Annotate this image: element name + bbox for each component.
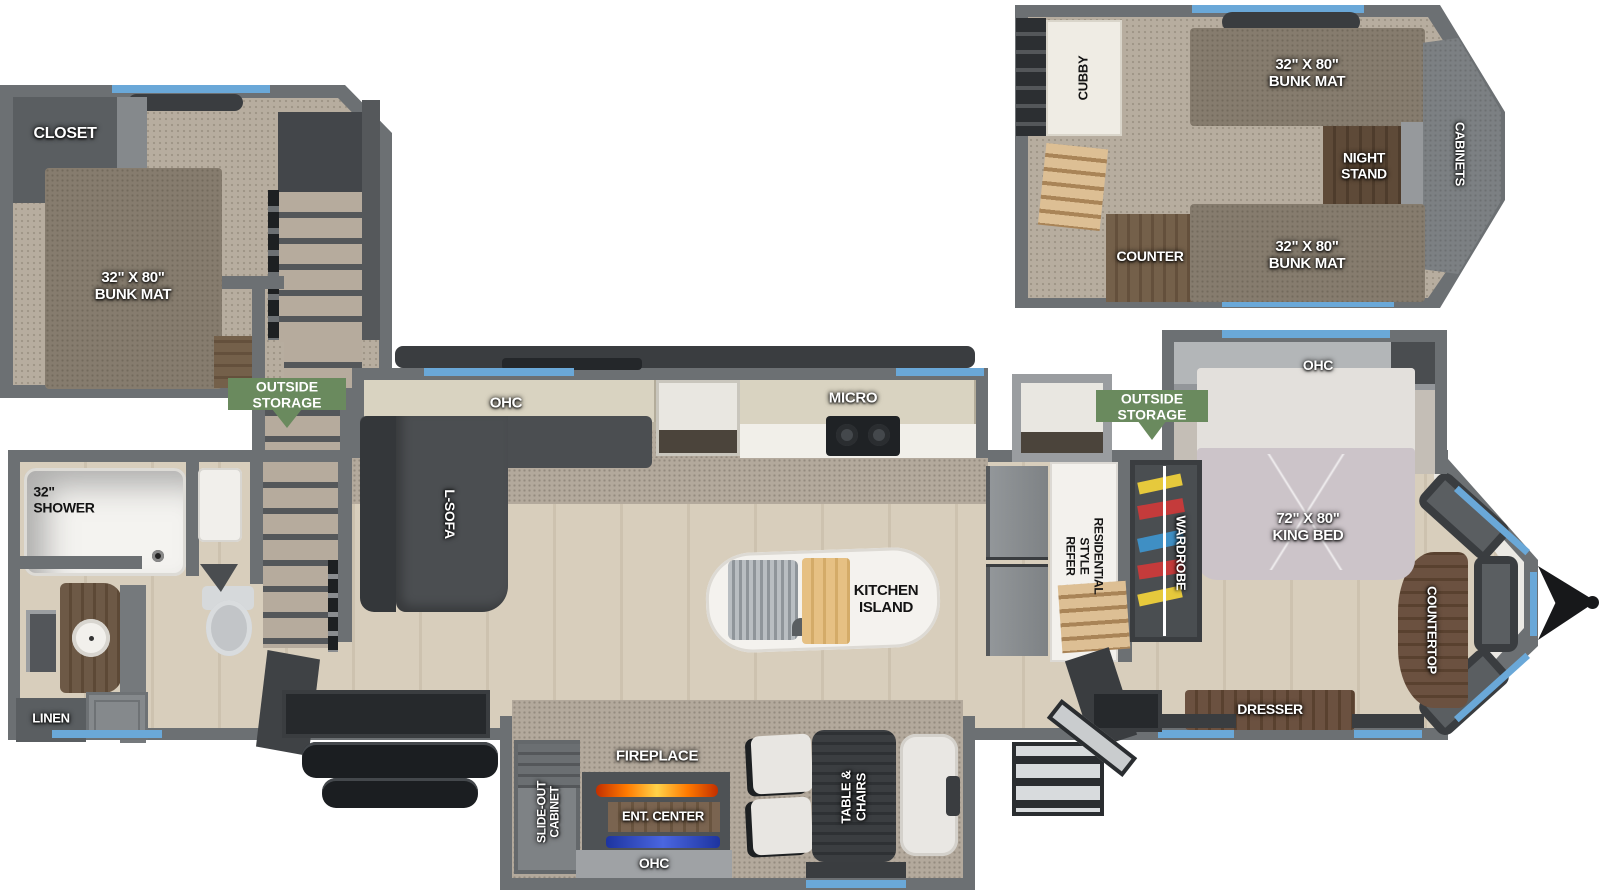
- stove-burner-right: [868, 424, 890, 446]
- bath-bottom-window: [52, 730, 162, 738]
- nose-window-front-pane: [1482, 564, 1510, 644]
- counter-label: COUNTER: [1116, 249, 1183, 265]
- nose-window-strip-front: [1530, 572, 1537, 636]
- right-loft-ladder-black: [1016, 18, 1046, 136]
- hitch-coupler: [1586, 596, 1599, 609]
- king-bed-mattress: [1197, 368, 1415, 580]
- shower-drain: [152, 550, 164, 562]
- left-loft-stair-landing: [278, 112, 362, 192]
- left-loft-wall-stub-v: [252, 276, 265, 388]
- cubby-label: CUBBY: [1077, 56, 1092, 101]
- bunk-mat-left-label: 32" X 80" BUNK MAT: [95, 270, 171, 304]
- refer-door-lower: [986, 564, 1048, 656]
- slide-window-left: [424, 368, 574, 376]
- cabinets-label: CABINETS: [1452, 122, 1467, 186]
- entry-step-1: [302, 742, 498, 778]
- bed-ohc-label: OHC: [1303, 358, 1333, 374]
- outside-storage-right-label: OUTSIDE STORAGE: [1118, 391, 1187, 422]
- left-loft-stairs: [278, 192, 362, 342]
- toilet-room-cabinet: [198, 468, 242, 542]
- kitchen-island-label: KITCHEN ISLAND: [854, 583, 919, 617]
- dresser-label: DRESSER: [1237, 702, 1303, 718]
- fireplace-label: FIREPLACE: [616, 749, 698, 766]
- refer-label: RESIDENTIAL STYLE REFER: [1063, 518, 1104, 595]
- entry-step-2: [322, 778, 478, 808]
- wardrobe-rod: [1163, 466, 1166, 636]
- island-cutting-board: [802, 558, 850, 644]
- rv-floorplan: CLOSET 32" X 80" BUNK MAT OUTSIDE STORAG…: [0, 0, 1600, 896]
- stove-burner-left: [836, 424, 858, 446]
- left-loft-window: [112, 85, 270, 93]
- l-sofa-arm: [360, 416, 396, 612]
- king-bed-label: 72" X 80" KING BED: [1273, 511, 1344, 545]
- stairs-lower-railing: [328, 560, 338, 652]
- night-stand-label: NIGHT STAND: [1341, 150, 1387, 181]
- bottom-slide-window-sill: [806, 862, 906, 878]
- slide-out-cabinet-label: SLIDE-OUT CABINET: [536, 781, 563, 843]
- l-sofa-label: L-SOFA: [441, 489, 457, 539]
- closet-label: CLOSET: [33, 125, 96, 143]
- pantry-cabinet: [656, 380, 740, 456]
- main-stairs: [263, 462, 338, 648]
- entry-platform: [282, 690, 490, 738]
- nose-window-front: [1474, 556, 1518, 652]
- slide-window-right: [896, 368, 984, 376]
- bath-mirror: [26, 610, 56, 672]
- countertop-label: COUNTERTOP: [1424, 586, 1439, 674]
- stairs-wall-right: [338, 462, 352, 642]
- linen-label: LINEN: [32, 712, 70, 727]
- micro-label: MICRO: [829, 391, 878, 408]
- bunk-mat-right-top-label: 32" X 80" BUNK MAT: [1269, 57, 1345, 91]
- right-loft-wood-ladder: [1038, 143, 1108, 231]
- bath-wall-right: [250, 462, 263, 584]
- bedroom-window-sill-left: [1156, 714, 1236, 728]
- bottom-slide-window: [806, 880, 906, 888]
- wardrobe-label: WARDROBE: [1173, 516, 1188, 591]
- vanity-sink-drain: [89, 636, 94, 641]
- dinette-bench-side: [946, 776, 960, 816]
- bedroom-door-platform: [1090, 690, 1162, 732]
- left-loft-stair-railing: [268, 190, 279, 340]
- awning-rail: [395, 346, 975, 368]
- left-loft-right-panel: [362, 100, 380, 340]
- bedroom-window-sill-right: [1352, 714, 1424, 728]
- shower-label: 32" SHOWER: [33, 484, 94, 515]
- outside-storage-left-label: OUTSIDE STORAGE: [253, 379, 322, 410]
- toilet-bowl: [206, 600, 252, 656]
- bunk-mat-right-bottom-label: 32" X 80" BUNK MAT: [1269, 239, 1345, 273]
- bedroom-window-left: [1158, 730, 1234, 738]
- bath-wall-under-shower: [20, 556, 142, 569]
- island-sink: [728, 560, 798, 640]
- ent-led-bar: [606, 836, 720, 848]
- bedroom-window-right: [1354, 730, 1422, 738]
- bedroom-entry-steps: [1012, 742, 1104, 816]
- dinette-chair-1: [751, 733, 814, 794]
- dinette-table-label: TABLE & CHAIRS: [839, 770, 868, 823]
- fireplace-flame: [596, 784, 718, 797]
- ent-ohc-label: OHC: [639, 856, 669, 872]
- sofa-ohc-label: OHC: [490, 396, 522, 413]
- king-slide-window: [1222, 330, 1390, 338]
- ent-center-label: ENT. CENTER: [622, 810, 704, 825]
- refer-door-upper: [986, 466, 1048, 560]
- dinette-chair-2: [751, 796, 814, 855]
